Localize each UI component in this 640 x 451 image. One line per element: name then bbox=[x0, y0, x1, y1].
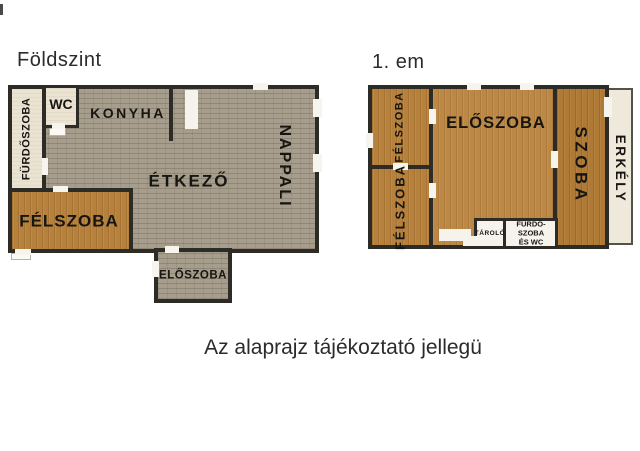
window-opening bbox=[313, 154, 322, 172]
balcony-door-opening bbox=[604, 97, 612, 117]
door-opening bbox=[165, 246, 179, 253]
door-opening bbox=[152, 261, 159, 277]
label-felszoba-first-top: FÉLSZOBA bbox=[395, 91, 406, 162]
kitchen-counter bbox=[185, 90, 198, 129]
label-felszoba-ground: FÉLSZOBA bbox=[19, 213, 119, 230]
door-opening bbox=[429, 109, 436, 124]
ground-floor-title: Földszint bbox=[17, 49, 102, 72]
door-opening bbox=[15, 249, 31, 255]
label-tarolo: TÁROLÓ bbox=[475, 231, 505, 238]
door-opening bbox=[53, 186, 68, 192]
window-opening bbox=[467, 83, 481, 90]
label-nappali: NAPPALI bbox=[276, 124, 292, 207]
door-opening bbox=[52, 123, 65, 129]
label-erkely: ERKÉLY bbox=[613, 135, 627, 204]
first-floor-title: 1. em bbox=[372, 51, 425, 74]
window-opening bbox=[313, 99, 322, 117]
window-opening bbox=[520, 83, 534, 90]
label-furdoszoba-wc: FÜRDŐ-SZOBA ÉS WC bbox=[513, 220, 549, 247]
scan-artifact bbox=[0, 4, 3, 15]
door-opening bbox=[429, 183, 436, 198]
stair-symbol-step bbox=[463, 236, 479, 246]
door-leaf bbox=[49, 128, 66, 136]
label-felszoba-first-bottom: FÉLSZOBA bbox=[394, 164, 407, 250]
label-eloszoba-ground: ELŐSZOBA bbox=[159, 270, 227, 282]
door-opening bbox=[551, 151, 558, 168]
floor-plan-page: Földszint FÜRDŐSZOBA WC KONYHA ÉTKEZŐ NA… bbox=[0, 0, 640, 451]
label-furdoszoba: FÜRDŐSZOBA bbox=[22, 98, 33, 181]
label-eloszoba-first: ELŐSZOBA bbox=[446, 115, 546, 132]
window-opening bbox=[253, 83, 268, 90]
disclaimer-text: Az alaprajz tájékoztató jellegü bbox=[43, 336, 640, 360]
label-szoba: SZOBA bbox=[573, 127, 590, 204]
kitchen-partition-wall bbox=[169, 85, 173, 141]
label-konyha: KONYHA bbox=[90, 106, 166, 120]
door-opening bbox=[42, 158, 48, 175]
label-etkezo: ÉTKEZŐ bbox=[149, 173, 230, 190]
window-opening bbox=[366, 133, 373, 148]
label-wc: WC bbox=[49, 97, 72, 111]
